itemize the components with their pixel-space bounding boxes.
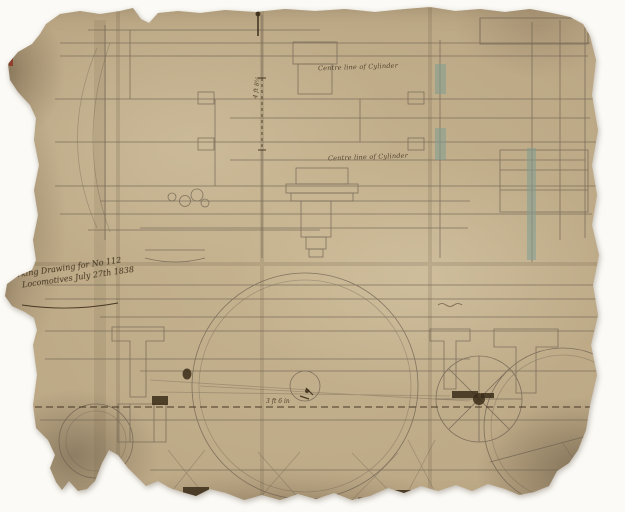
- ink-fills: [152, 12, 588, 501]
- brake-block-right: [556, 481, 588, 491]
- brake-block-left: [183, 487, 209, 498]
- ink-linework: [22, 10, 600, 499]
- scan-background: Centre line of Cylinder Centre line of C…: [0, 0, 625, 512]
- drawing-sheet: Centre line of Cylinder Centre line of C…: [0, 0, 625, 512]
- wheel-dimension-label: 3 ft 6 in: [266, 398, 290, 405]
- locomotive-drawing-linework: [0, 0, 625, 512]
- axlebox-blue-wash: [435, 64, 536, 260]
- brake-block-centre: [388, 490, 414, 500]
- red-edge-mark: [9, 57, 13, 66]
- drawing-sheet-wrapper: Centre line of Cylinder Centre line of C…: [0, 0, 625, 512]
